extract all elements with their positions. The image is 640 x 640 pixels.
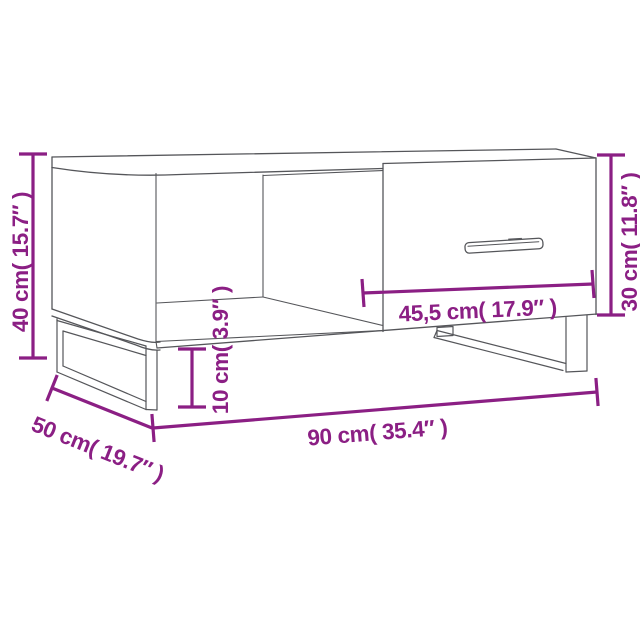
coffee-table-drawing xyxy=(52,149,597,410)
dim-leg-clearance-label: 10 cm( 3.9″ ) xyxy=(208,286,233,414)
dim-body-height: 30 cm( 11.8″ ) xyxy=(597,155,640,315)
left-side-panel xyxy=(52,168,160,351)
dim-drawer-width-label: 45,5 cm( 17.9″ ) xyxy=(398,294,557,326)
dim-drawer-width: 45,5 cm( 17.9″ ) xyxy=(362,270,594,327)
dimension-annotations: 40 cm( 15.7″ ) 50 cm( 19.7″ ) 90 cm( 35.… xyxy=(8,154,640,487)
dim-overall-height-label: 40 cm( 15.7″ ) xyxy=(8,192,33,332)
open-compartment xyxy=(156,171,383,349)
dim-overall-height: 40 cm( 15.7″ ) xyxy=(8,154,47,358)
dim-body-height-label: 30 cm( 11.8″ ) xyxy=(617,172,640,311)
diagram-canvas: 40 cm( 15.7″ ) 50 cm( 19.7″ ) 90 cm( 35.… xyxy=(0,0,640,640)
dimension-diagram-svg: 40 cm( 15.7″ ) 50 cm( 19.7″ ) 90 cm( 35.… xyxy=(0,0,640,640)
table-top xyxy=(52,149,596,175)
drawer-handle xyxy=(465,237,544,253)
dim-depth-label: 50 cm( 19.7″ ) xyxy=(28,411,168,486)
dim-depth: 50 cm( 19.7″ ) xyxy=(28,375,168,487)
right-leg xyxy=(434,316,587,373)
dim-width-label: 90 cm( 35.4″ ) xyxy=(306,414,448,450)
dim-leg-clearance: 10 cm( 3.9″ ) xyxy=(178,286,233,414)
